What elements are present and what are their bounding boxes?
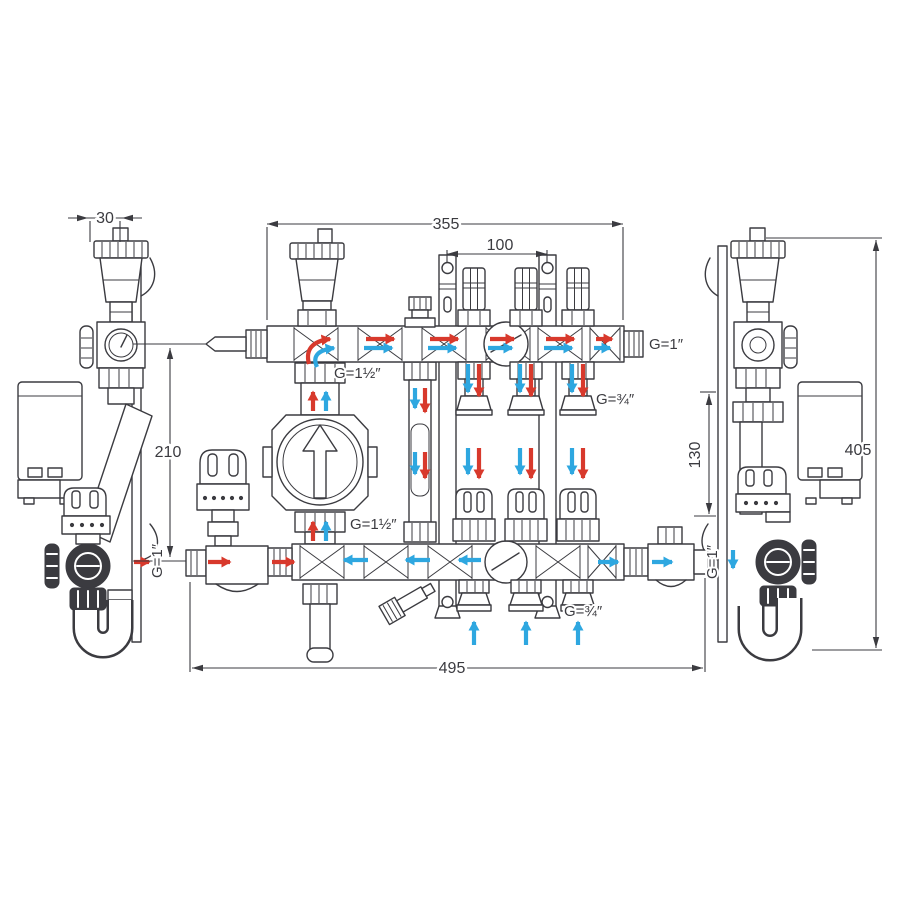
label-top-manifold-end: G=1″ bbox=[649, 336, 684, 353]
union-nut-right bbox=[736, 368, 780, 388]
valve-bonnet bbox=[562, 268, 594, 326]
label-pump-union-bottom: G=1½″ bbox=[350, 516, 397, 533]
sight-glass-tube bbox=[404, 362, 436, 542]
valve-bonnet bbox=[458, 268, 490, 326]
valve-knob bbox=[453, 489, 495, 541]
bracket-slot bbox=[544, 297, 551, 312]
loop-inlet bbox=[457, 580, 491, 611]
return-valve-knobs bbox=[453, 489, 599, 541]
label-primary-return: G=1″ bbox=[704, 544, 721, 579]
manifold-technical-drawing: 30 355 100 210 130 405 bbox=[0, 0, 900, 900]
dim-label-405: 405 bbox=[845, 442, 872, 459]
wall-bracket-rail-right bbox=[718, 246, 727, 642]
valve-bonnets bbox=[458, 268, 594, 326]
dim-label-130: 130 bbox=[687, 442, 704, 469]
thermometer-gauge bbox=[105, 329, 137, 361]
auto-air-vent-front bbox=[290, 229, 344, 326]
handwheel-right bbox=[784, 326, 797, 368]
bracket-hole bbox=[442, 263, 453, 274]
label-pump-union-top: G=1½″ bbox=[334, 365, 381, 382]
union-nut bbox=[99, 368, 143, 388]
valve-knob bbox=[505, 489, 547, 541]
label-loop-return: G=¾″ bbox=[564, 603, 603, 620]
label-primary-supply: G=1″ bbox=[149, 543, 166, 578]
supply-manifold bbox=[206, 322, 643, 366]
dim-label-100: 100 bbox=[487, 237, 514, 254]
thermometer-valve-left bbox=[80, 322, 145, 368]
sensor-probe bbox=[206, 337, 246, 351]
bracket-slot bbox=[444, 297, 451, 312]
bracket-hole bbox=[542, 263, 553, 274]
valve-bonnet bbox=[510, 268, 542, 326]
label-loop-supply: G=¾″ bbox=[596, 391, 635, 408]
thermostatic-head bbox=[200, 450, 246, 484]
dim-label-210: 210 bbox=[155, 444, 182, 461]
dim-label-495: 495 bbox=[439, 660, 466, 677]
return-manifold bbox=[292, 541, 624, 583]
loop-inlet bbox=[509, 580, 543, 611]
dim-label-355: 355 bbox=[433, 216, 460, 233]
valve-knob bbox=[557, 489, 599, 541]
ball-valve-right bbox=[734, 322, 797, 368]
dim-label-30: 30 bbox=[96, 210, 114, 227]
handwheel-left bbox=[80, 326, 93, 368]
bracket-hole bbox=[442, 597, 453, 608]
